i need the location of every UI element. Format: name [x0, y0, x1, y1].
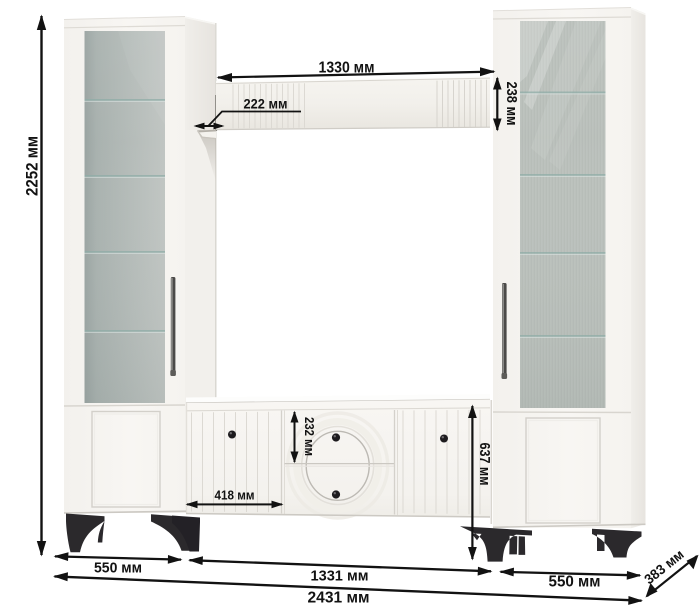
- svg-text:1330 мм: 1330 мм: [319, 60, 375, 77]
- svg-text:637 мм: 637 мм: [476, 443, 493, 486]
- svg-text:238 мм: 238 мм: [503, 82, 519, 126]
- svg-text:550 мм: 550 мм: [549, 574, 601, 591]
- svg-text:2252 мм: 2252 мм: [23, 136, 42, 196]
- svg-text:550 мм: 550 мм: [94, 560, 142, 577]
- svg-text:222 мм: 222 мм: [244, 96, 288, 112]
- svg-text:1331 мм: 1331 мм: [311, 568, 369, 585]
- svg-text:418 мм: 418 мм: [215, 488, 255, 503]
- svg-text:2431 мм: 2431 мм: [308, 590, 370, 607]
- svg-text:232 мм: 232 мм: [302, 417, 317, 456]
